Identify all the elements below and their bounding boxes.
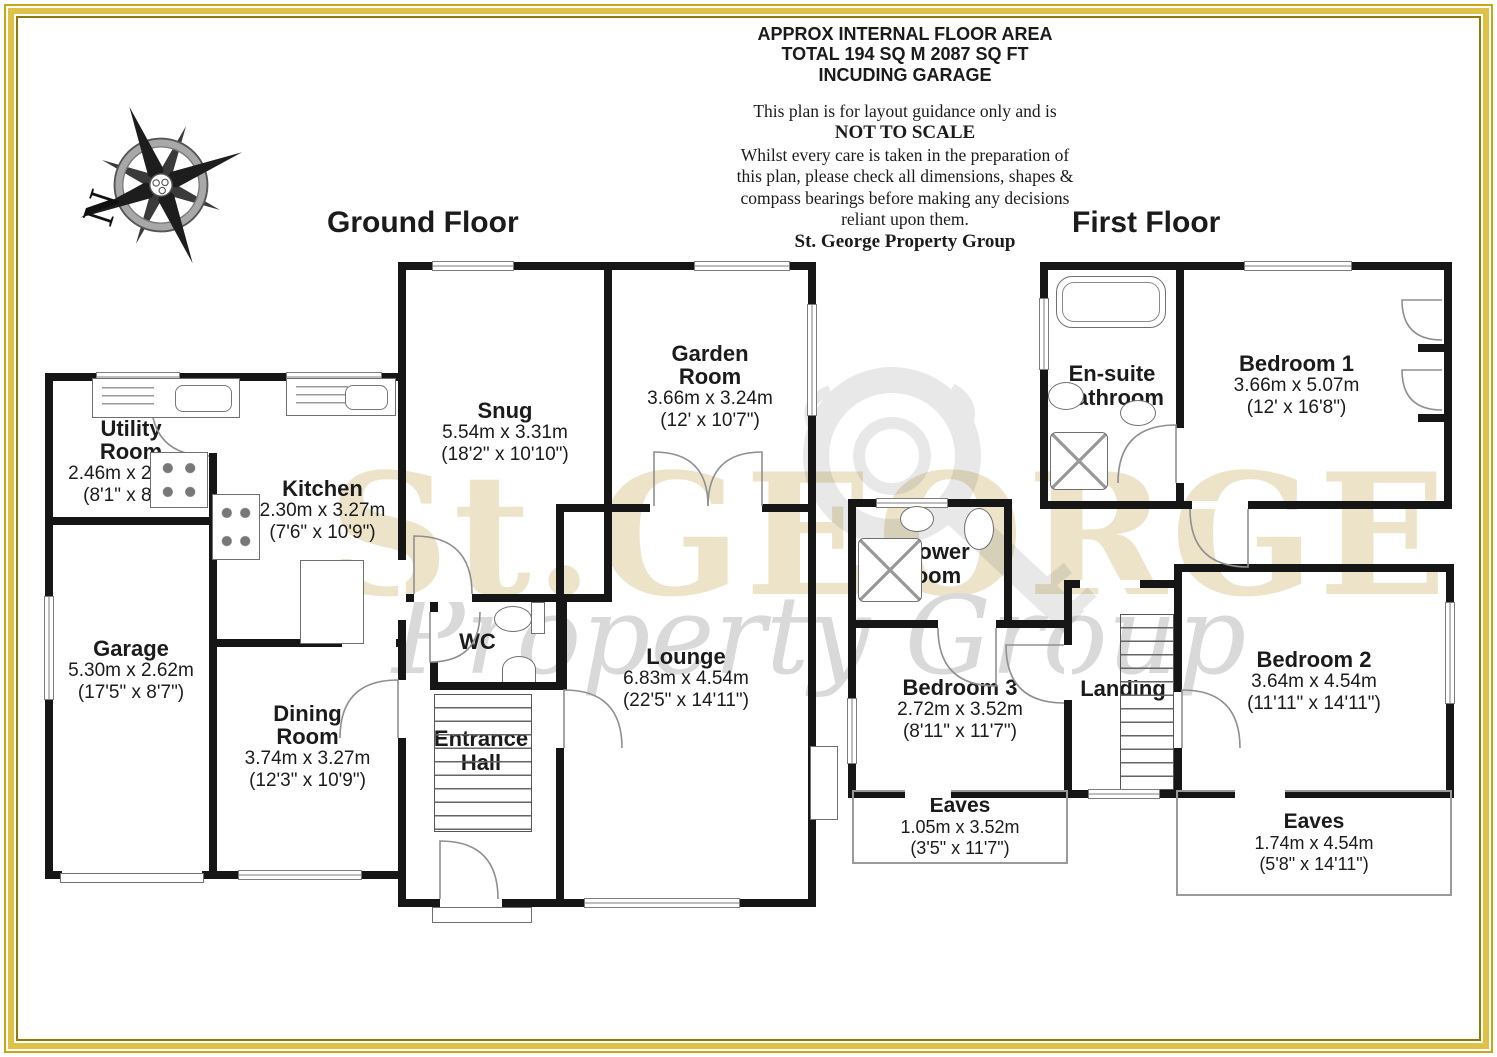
door-arc-icon bbox=[1006, 645, 1064, 703]
french-door-right-icon bbox=[708, 452, 762, 506]
room-eaves-right-name: Eaves bbox=[1284, 811, 1345, 833]
door-opening bbox=[414, 594, 472, 602]
room-garden-room-name: Garden Room bbox=[650, 342, 770, 388]
room-bedroom-1-name: Bedroom 1 bbox=[1239, 352, 1354, 375]
door-opening bbox=[398, 680, 406, 738]
toilet-fixture bbox=[494, 606, 532, 632]
company-name: St. George Property Group bbox=[690, 231, 1120, 254]
disclaimer-not-to-scale: NOT TO SCALE bbox=[690, 122, 1120, 145]
door-opening bbox=[1064, 645, 1072, 700]
garage-door bbox=[60, 873, 204, 883]
door-arc-icon bbox=[414, 536, 472, 594]
ground-floor-heading: Ground Floor bbox=[327, 206, 519, 240]
wardrobe-divider bbox=[1418, 414, 1452, 422]
toilet-cistern bbox=[531, 602, 545, 634]
staircase bbox=[1120, 614, 1174, 790]
room-lounge-name: Lounge bbox=[646, 645, 725, 668]
window bbox=[847, 698, 857, 764]
door-arc-icon bbox=[1182, 690, 1240, 748]
window bbox=[1445, 602, 1455, 704]
room-eaves-left: Eaves 1.05m x 3.52m (3'5" x 11'7") bbox=[852, 790, 1068, 864]
room-garage-name: Garage bbox=[93, 637, 169, 660]
room-eaves-right: Eaves 1.74m x 4.54m (5'8" x 14'11") bbox=[1176, 790, 1452, 896]
eaves-access-opening bbox=[905, 790, 951, 798]
toilet-fixture bbox=[900, 506, 934, 532]
porch-step bbox=[432, 907, 532, 923]
door-opening bbox=[1174, 692, 1182, 748]
door-opening bbox=[1192, 501, 1248, 509]
disclaimer-line-1: This plan is for layout guidance only an… bbox=[690, 101, 1120, 122]
shower-tray bbox=[858, 538, 922, 602]
door-opening bbox=[938, 620, 996, 628]
window bbox=[584, 898, 740, 908]
wardrobe-divider bbox=[1418, 344, 1452, 352]
window bbox=[44, 596, 54, 700]
kitchen-hob bbox=[212, 494, 260, 560]
door-arc-icon bbox=[340, 680, 398, 738]
door-arc-icon bbox=[938, 628, 996, 686]
compass-rose-icon: N bbox=[66, 106, 256, 264]
window bbox=[432, 261, 514, 271]
room-garage: Garage 5.30m x 2.62m (17'5" x 8'7") bbox=[45, 517, 217, 879]
header-line-1: APPROX INTERNAL FLOOR AREA bbox=[690, 24, 1120, 44]
shower-tray bbox=[1050, 432, 1108, 490]
french-door-left-icon bbox=[654, 452, 708, 506]
disclaimer-line-5: compass bearings before making any decis… bbox=[690, 188, 1120, 209]
toilet-fixture bbox=[1120, 400, 1156, 426]
room-bedroom-2-name: Bedroom 2 bbox=[1257, 648, 1372, 671]
header: APPROX INTERNAL FLOOR AREA TOTAL 194 SQ … bbox=[690, 24, 1120, 253]
door-opening bbox=[556, 690, 564, 748]
window bbox=[1244, 261, 1352, 271]
basin-fixture bbox=[1048, 382, 1084, 410]
room-bedroom-2: Bedroom 2 3.64m x 4.54m (11'11" x 14'11"… bbox=[1174, 564, 1454, 798]
basin-fixture bbox=[964, 508, 994, 550]
room-dining: Dining Room 3.74m x 3.27m (12'3" x 10'9"… bbox=[209, 639, 406, 879]
door-arc-icon bbox=[1118, 425, 1176, 483]
door-arc-icon bbox=[430, 612, 480, 662]
window bbox=[1039, 298, 1049, 370]
wardrobe-door-arc-icon bbox=[1402, 300, 1442, 340]
disclaimer-line-6: reliant upon them. bbox=[690, 209, 1120, 230]
kitchen-counter bbox=[300, 560, 364, 644]
front-door-opening bbox=[440, 899, 502, 907]
staircase bbox=[434, 694, 532, 832]
front-door-arc-icon bbox=[440, 841, 498, 899]
first-floor-heading: First Floor bbox=[1072, 206, 1220, 240]
disclaimer-line-4: this plan, please check all dimensions, … bbox=[690, 166, 1120, 187]
door-opening bbox=[1176, 428, 1184, 483]
door-opening bbox=[398, 560, 406, 620]
header-line-3: INCUDING GARAGE bbox=[690, 65, 1120, 85]
door-opening bbox=[1080, 580, 1140, 588]
fireplace bbox=[810, 746, 838, 820]
disclaimer-line-3: Whilst every care is taken in the prepar… bbox=[690, 145, 1120, 166]
room-eaves-left-name: Eaves bbox=[930, 795, 991, 817]
room-kitchen-name: Kitchen bbox=[282, 477, 363, 500]
eaves-access-opening bbox=[1235, 790, 1285, 798]
bathtub-fixture bbox=[1056, 276, 1166, 328]
door-arc-icon bbox=[564, 690, 622, 748]
kitchen-sink-unit bbox=[286, 378, 396, 416]
basin-fixture bbox=[502, 656, 536, 682]
wardrobe-door-arc-icon bbox=[1402, 370, 1442, 410]
window bbox=[238, 870, 362, 880]
room-snug-name: Snug bbox=[478, 399, 533, 422]
window bbox=[807, 304, 817, 416]
window bbox=[1088, 789, 1160, 799]
window bbox=[694, 261, 790, 271]
floorplan-page: St.GEORGE Property Group APPROX INTERNAL… bbox=[0, 0, 1497, 1057]
header-line-2: TOTAL 194 SQ M 2087 SQ FT bbox=[690, 44, 1120, 64]
door-arc-icon bbox=[1190, 509, 1248, 567]
utility-sink-unit bbox=[92, 378, 240, 418]
utility-hob bbox=[150, 452, 208, 508]
